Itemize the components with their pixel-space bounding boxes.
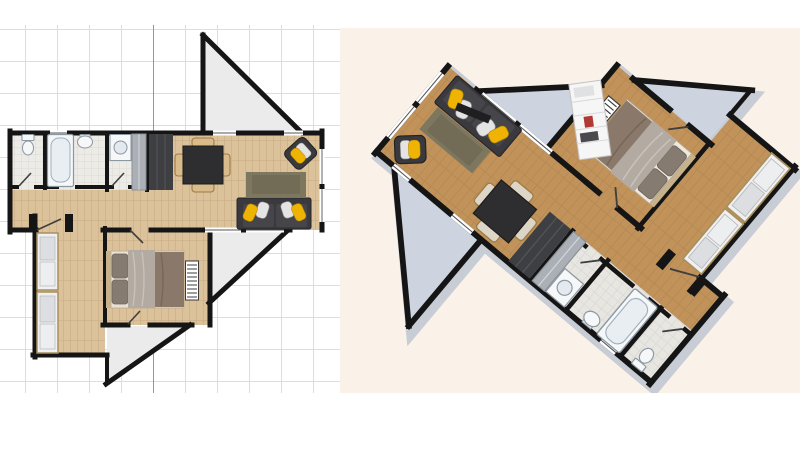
bookshelf-red-books [584,116,594,128]
app-canvas [0,0,800,450]
dual-view-canvas [0,0,800,450]
plan-3d-panel[interactable] [302,0,800,450]
plan-2d-panel[interactable] [0,0,340,450]
